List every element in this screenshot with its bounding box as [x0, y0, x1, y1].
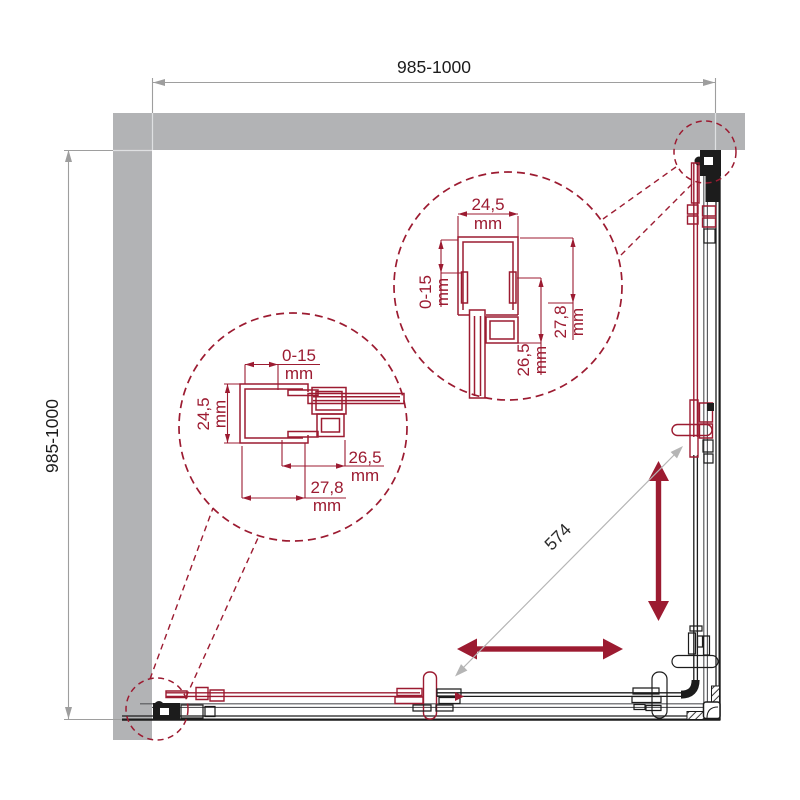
width-dimension-lines — [153, 78, 716, 113]
dim-unit-profile-depth-left: mm — [313, 496, 341, 515]
corner-post-block — [704, 702, 721, 719]
wall-profile-inner-right — [463, 242, 513, 310]
door-edge-profile-bottom — [395, 689, 423, 704]
slide-arrow-horizontal-shaft — [475, 646, 605, 651]
dim-value-adjustment-left: 0-15 — [282, 346, 316, 365]
drawing-canvas: 985-1000 985-1000 — [0, 0, 800, 800]
dim-value-profile-depth-left: 27,8 — [310, 478, 343, 497]
detail-right-dims: 24,5 mm 0-15 mm 26,5 mm 27,8 mm — [416, 195, 587, 377]
callout-leaders-top-right — [603, 167, 692, 256]
right-sliding-door-glass — [694, 163, 698, 437]
corner-elbow-joint — [681, 680, 696, 695]
shower-enclosure-technical-drawing: 985-1000 985-1000 — [0, 0, 800, 800]
glass-holder-block-left — [317, 414, 344, 437]
rollers-mid-right — [703, 440, 713, 463]
dim-unit-glass-inset: mm — [531, 346, 550, 374]
dimension-diagonal: 574 — [455, 446, 683, 677]
wall-profile-outer-left — [240, 384, 308, 443]
corner-hatch-right — [712, 686, 720, 703]
depth-dimension-label: 985-1000 — [42, 399, 62, 473]
glass-holder-profile-right — [486, 317, 518, 343]
door-handle-right — [672, 425, 712, 436]
glass-panel-section-left — [308, 394, 404, 404]
dimension-width: 985-1000 — [153, 57, 716, 113]
detail-left-dims: 0-15 mm 24,5 mm 26,5 mm 27,8 mm — [194, 346, 384, 515]
bottom-sliding-door-glass — [166, 693, 420, 697]
slide-arrow-vertical-shaft — [656, 479, 661, 603]
dim-unit-profile-width-left: mm — [211, 400, 230, 428]
profile-clamp-lips-right — [462, 272, 517, 303]
door-handle-bottom — [424, 672, 437, 719]
dim-unit-adjustment: mm — [433, 278, 452, 306]
profile-section-left — [240, 384, 404, 443]
roller-cluster-bottom-middle — [395, 672, 464, 719]
width-dimension-label: 985-1000 — [397, 57, 471, 77]
diagonal-dimension-line — [457, 448, 681, 674]
right-fixed-glass-lines — [704, 163, 708, 705]
dim-value-profile-width: 24,5 — [471, 195, 504, 214]
wall-left — [113, 113, 152, 740]
roller-top-right — [704, 229, 715, 243]
dim-unit-profile-width: mm — [474, 214, 502, 233]
callout-leaders-bottom-left — [150, 508, 258, 697]
dim-unit-profile-depth: mm — [568, 308, 587, 336]
glass-panel-section-right — [470, 310, 486, 398]
roller-cluster-right-lower — [689, 626, 710, 655]
corner-hatch-bottom — [687, 712, 704, 720]
detail-view-right: 24,5 mm 0-15 mm 26,5 mm 27,8 mm — [394, 172, 622, 400]
slide-arrow-vertical — [648, 461, 669, 621]
door-bumper-right — [672, 656, 718, 668]
profile-section-right — [458, 237, 518, 398]
roller-block-mid-right — [707, 403, 714, 411]
detail-callouts — [126, 121, 736, 740]
bracket-notch-top — [704, 157, 713, 165]
bracket-notch-bottom — [160, 708, 169, 715]
dim-unit-glass-inset-left: mm — [351, 466, 379, 485]
dim-value-glass-inset-left: 26,5 — [348, 448, 381, 467]
enclosure-frame — [122, 150, 720, 721]
dim-unit-adjustment-left: mm — [285, 364, 313, 383]
dimension-depth: 985-1000 — [42, 150, 122, 720]
door-end-profile-and-rollers-bottom-left — [166, 688, 224, 702]
wall-profile-inner-left — [245, 389, 303, 438]
diagonal-dimension-label: 574 — [540, 519, 575, 554]
wall-top — [113, 113, 745, 150]
detail-view-left: 0-15 mm 24,5 mm 26,5 mm 27,8 mm — [179, 313, 407, 541]
